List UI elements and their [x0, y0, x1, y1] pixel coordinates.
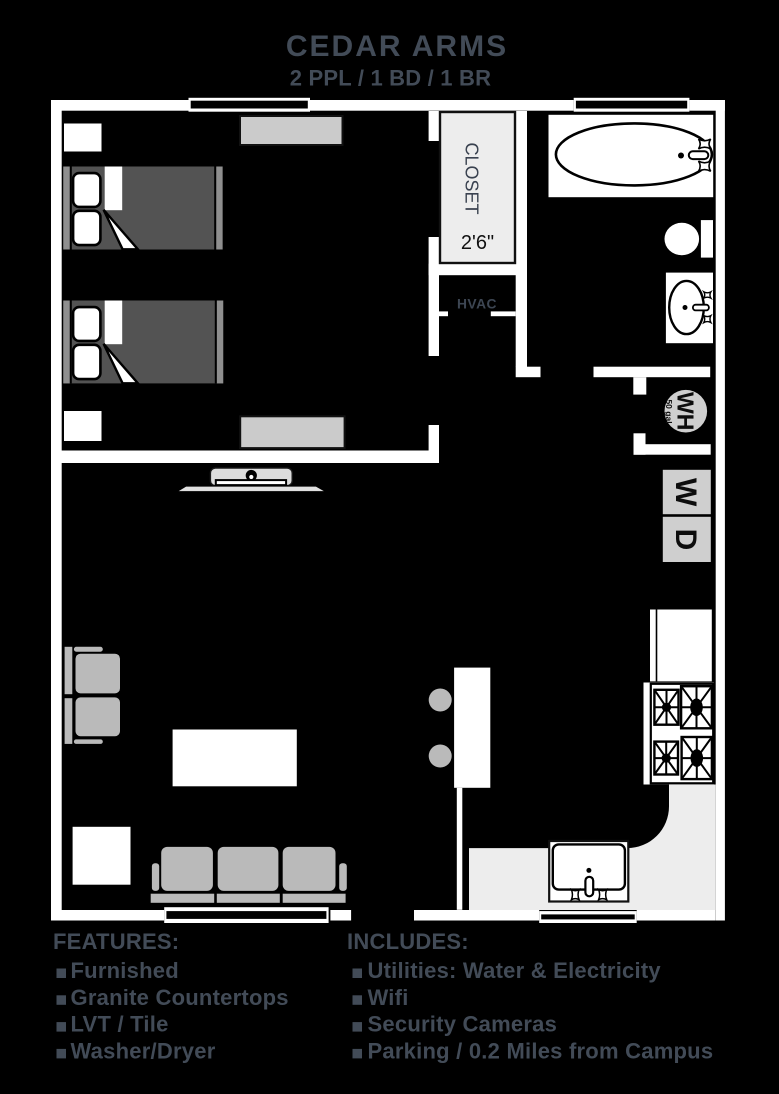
svg-text:LVT / Tile: LVT / Tile [71, 1012, 169, 1037]
svg-text:CLOSET: CLOSET [462, 142, 482, 214]
svg-text:2'6": 2'6" [461, 232, 494, 254]
svg-text:CEDAR ARMS: CEDAR ARMS [286, 30, 508, 63]
svg-text:FEATURES:: FEATURES: [53, 929, 179, 954]
svg-text:HVAC: HVAC [457, 297, 497, 312]
svg-text:2 PPL / 1 BD / 1 BR: 2 PPL / 1 BD / 1 BR [290, 66, 491, 91]
svg-text:Parking / 0.2 Miles from Campu: Parking / 0.2 Miles from Campus [368, 1038, 714, 1063]
svg-text:Washer/Dryer: Washer/Dryer [71, 1038, 216, 1063]
svg-text:D: D [669, 529, 702, 551]
svg-text:Furnished: Furnished [71, 958, 179, 983]
svg-text:INCLUDES:: INCLUDES: [347, 929, 469, 954]
svg-text:50 gal: 50 gal [664, 399, 674, 423]
svg-text:Wifi: Wifi [368, 985, 409, 1010]
svg-text:Utilities: Water & Electricity: Utilities: Water & Electricity [368, 958, 662, 983]
svg-text:Security Cameras: Security Cameras [368, 1012, 558, 1037]
svg-text:WH: WH [673, 392, 699, 430]
svg-text:W: W [669, 478, 702, 507]
svg-text:Granite Countertops: Granite Countertops [71, 985, 289, 1010]
